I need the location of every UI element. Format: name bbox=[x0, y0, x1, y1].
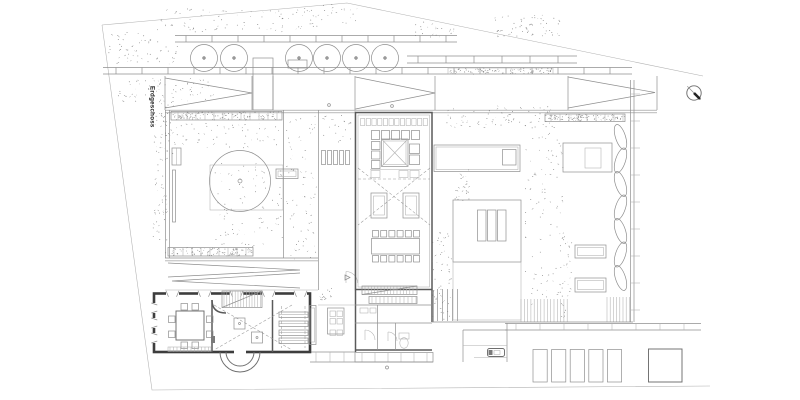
left-courtyard bbox=[165, 110, 318, 290]
parking-stall bbox=[607, 350, 621, 383]
driveway-parking bbox=[434, 289, 683, 382]
parking-stall bbox=[533, 350, 547, 383]
floor-label: Erdgeschoss bbox=[149, 86, 156, 128]
parking-stall bbox=[552, 350, 566, 383]
south-wing-bathrooms bbox=[310, 290, 433, 369]
floor-plan-canvas: Erdgeschoss bbox=[0, 0, 800, 400]
right-courtyard bbox=[432, 68, 701, 330]
courtyard-tree-icon bbox=[210, 151, 271, 212]
main-house bbox=[356, 113, 433, 304]
pergola-corridor bbox=[319, 110, 358, 290]
perimeter-walls-top bbox=[103, 36, 657, 113]
floor-plan-drawing: Erdgeschoss bbox=[0, 0, 800, 400]
site-boundary bbox=[102, 3, 710, 390]
hedge-strip bbox=[612, 123, 630, 292]
parking-stall bbox=[570, 350, 584, 383]
planting-texture bbox=[108, 4, 625, 320]
entry-ramp-band bbox=[165, 76, 657, 110]
north-arrow-icon bbox=[687, 86, 701, 100]
parking-square-pad bbox=[649, 349, 683, 382]
parking-stall bbox=[589, 350, 603, 383]
car-icon bbox=[488, 349, 505, 357]
old-villa bbox=[151, 291, 316, 372]
